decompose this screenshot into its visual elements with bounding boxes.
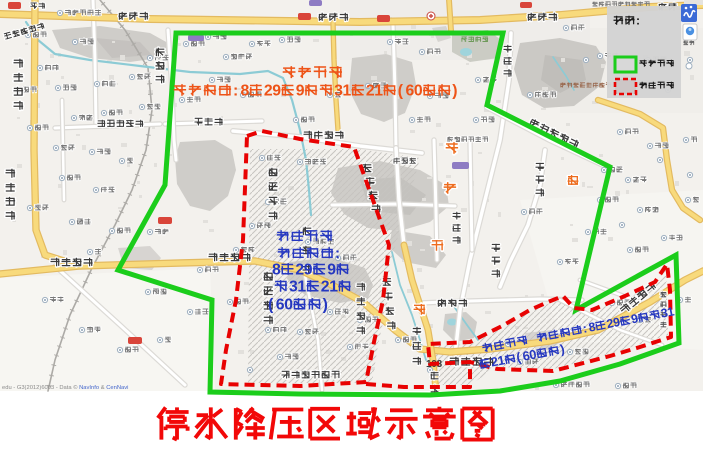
svg-text:8: 8 (272, 261, 281, 278)
svg-text:8: 8 (241, 82, 250, 99)
svg-text:9: 9 (296, 82, 305, 99)
svg-text:edu - G3(2012)6003 - Data © N: edu - G3(2012)6003 - Data © NavInfo & Ce… (2, 384, 128, 391)
svg-text:1: 1 (343, 82, 352, 99)
svg-text:): ) (323, 296, 328, 313)
svg-text:): ) (452, 82, 457, 99)
svg-text:(: ( (268, 296, 274, 313)
svg-text::: : (335, 245, 340, 262)
svg-text:9: 9 (304, 261, 313, 278)
svg-text:9: 9 (272, 82, 281, 99)
svg-text:0: 0 (414, 82, 423, 99)
svg-text:1: 1 (374, 82, 383, 99)
svg-text:(: ( (398, 82, 404, 99)
svg-text::: : (636, 13, 640, 27)
svg-text:9: 9 (327, 261, 336, 278)
svg-text:0: 0 (284, 296, 293, 313)
svg-text:1: 1 (329, 278, 338, 295)
svg-text::: : (233, 82, 238, 99)
svg-text:1: 1 (297, 278, 306, 295)
